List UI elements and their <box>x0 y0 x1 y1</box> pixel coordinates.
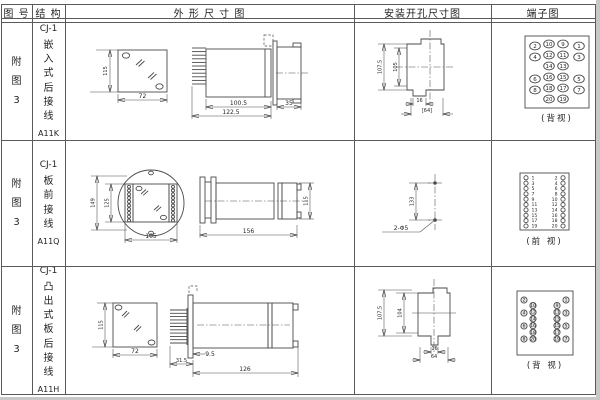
structure-cell-row3: CJ-1 凸出式板后接线 A11H <box>32 266 65 394</box>
svg-text:10: 10 <box>552 197 558 203</box>
svg-text:20: 20 <box>530 337 536 343</box>
relay-datasheet-page: 图 号 结 构 外 形 尺 寸 图 安装开孔尺寸图 端子图 附图3 附图3 附图… <box>0 0 600 400</box>
view-label: (背视) <box>541 113 573 124</box>
dim-label: 35 <box>285 100 293 107</box>
svg-text:18: 18 <box>552 218 558 224</box>
a11q-outline-drawing: 149 125 105 115 156 <box>65 140 354 267</box>
svg-text:13: 13 <box>560 64 567 70</box>
front-view: 115 72 <box>92 303 157 358</box>
svg-text:13: 13 <box>532 208 538 214</box>
header-divider <box>1 18 596 19</box>
column-divider <box>65 4 66 394</box>
dim-label: [64] <box>422 108 432 114</box>
dim-label: 72 <box>131 348 139 355</box>
view-label: (背 视) <box>527 360 563 371</box>
svg-text:5: 5 <box>577 77 581 83</box>
a11k-terminal-diagram: 21091 412113 1413 616155 818177 2019 (背视… <box>491 22 600 140</box>
front-view: 149 125 105 <box>91 170 185 243</box>
svg-text:1: 1 <box>577 44 581 50</box>
a11q-mounting-drawing: 133 2-Φ5 <box>354 140 491 267</box>
svg-text:7: 7 <box>577 88 581 94</box>
a11h-terminal-diagram: 2468 101214161820 91113151719 1357 (背 视) <box>491 267 600 395</box>
structure-cell-row2: CJ-1 板前接线 A11Q <box>32 140 65 266</box>
dim-label: 105 <box>145 233 157 240</box>
svg-text:13: 13 <box>554 316 560 322</box>
table-border-left <box>1 4 2 394</box>
svg-text:3: 3 <box>565 311 568 317</box>
svg-text:4: 4 <box>533 55 537 61</box>
svg-text:9: 9 <box>556 303 559 309</box>
fig-no-text: 附图3 <box>10 302 23 359</box>
svg-text:8: 8 <box>533 88 537 94</box>
column-divider <box>354 4 355 394</box>
svg-text:20: 20 <box>552 224 558 230</box>
model-code-label: A11K <box>38 129 59 138</box>
model-label: CJ-1 <box>40 266 58 276</box>
svg-text:12: 12 <box>546 53 553 59</box>
svg-text:7: 7 <box>532 192 535 198</box>
side-view: 100.5 122.5 35 <box>192 35 308 119</box>
svg-text:10: 10 <box>546 42 553 48</box>
dim-label: 156 <box>243 228 255 235</box>
dim-label: 9.5 <box>205 351 215 358</box>
svg-text:17: 17 <box>560 86 567 92</box>
side-view: 9.5 31.5 126 <box>170 286 298 377</box>
dim-label: 115 <box>103 66 109 76</box>
front-view: 115 72 <box>90 50 167 103</box>
hole-spec-label: 2-Φ5 <box>394 225 409 232</box>
row-divider <box>1 140 596 141</box>
dim-label: 104 <box>398 308 404 318</box>
svg-text:19: 19 <box>560 97 567 103</box>
svg-text:18: 18 <box>546 86 553 92</box>
dim-label: 115 <box>304 196 310 206</box>
dim-label: 16 <box>431 346 437 352</box>
column-divider <box>32 4 33 394</box>
dim-label: 100.5 <box>230 100 247 107</box>
side-view: 115 156 <box>200 177 314 238</box>
a11k-outline-drawing: 115 72 100.5 122.5 35 <box>65 22 354 140</box>
svg-text:14: 14 <box>546 64 553 70</box>
svg-text:9: 9 <box>561 42 565 48</box>
dim-label: 115 <box>99 320 105 330</box>
dim-label: 72 <box>139 93 147 100</box>
svg-text:16: 16 <box>552 213 558 219</box>
svg-text:17: 17 <box>554 330 560 336</box>
column-divider <box>491 4 492 394</box>
svg-text:1: 1 <box>532 175 535 181</box>
svg-text:3: 3 <box>532 181 535 187</box>
svg-text:3: 3 <box>577 55 581 61</box>
dim-label: 126 <box>239 366 251 373</box>
model-code-label: A11H <box>38 385 60 394</box>
dim-label: 149 <box>91 198 97 208</box>
a11h-outline-drawing: 115 72 9.5 31.5 126 <box>65 267 354 395</box>
svg-text:11: 11 <box>560 53 567 59</box>
dim-label: 64 <box>431 354 437 360</box>
dim-label: 107.5 <box>378 60 384 74</box>
fig-no-cell-row2: 附图3 <box>1 140 32 266</box>
svg-text:4: 4 <box>523 311 526 317</box>
dim-label: 133 <box>410 197 416 207</box>
svg-text:14: 14 <box>530 316 536 322</box>
svg-text:12: 12 <box>552 202 558 208</box>
svg-text:10: 10 <box>530 303 536 309</box>
dim-label: 16 <box>416 98 422 104</box>
dim-label: 107.5 <box>378 306 384 320</box>
row-divider <box>1 266 596 267</box>
fig-no-cell-row1: 附图3 <box>1 22 32 140</box>
view-label: (前 视) <box>526 236 562 247</box>
svg-text:17: 17 <box>532 218 538 224</box>
model-label: CJ-1 <box>40 24 58 34</box>
dim-label: 122.5 <box>222 109 239 116</box>
svg-text:19: 19 <box>554 337 560 343</box>
svg-text:1: 1 <box>565 298 568 304</box>
structure-cell-row1: CJ-1 嵌入式后接线 A11K <box>32 22 65 140</box>
a11k-mounting-drawing: 107.5 105 16 [64] <box>354 22 491 140</box>
svg-text:12: 12 <box>530 310 536 316</box>
svg-text:9: 9 <box>532 197 535 203</box>
dim-label: 105 <box>393 62 399 72</box>
a11h-mounting-drawing: 107.5 104 16 64 <box>354 267 491 395</box>
svg-text:8: 8 <box>555 192 558 198</box>
svg-text:11: 11 <box>554 310 560 316</box>
svg-text:11: 11 <box>532 202 538 208</box>
table-border-bottom <box>1 394 596 395</box>
model-code-label: A11Q <box>38 237 60 246</box>
terminal-circles: 135791113151719 2468101214161820 <box>524 175 565 229</box>
svg-text:15: 15 <box>532 213 538 219</box>
svg-text:5: 5 <box>532 186 535 192</box>
structure-type-label: 嵌入式后接线 <box>43 39 55 124</box>
a11q-terminal-diagram: 135791113151719 2468101214161820 (前 视) <box>491 140 600 267</box>
terminal-circles: 2468 101214161820 91113151719 1357 <box>521 297 569 343</box>
terminal-circles: 21091 412113 1413 616155 818177 2019 <box>530 40 585 103</box>
svg-text:8: 8 <box>523 337 526 343</box>
svg-text:20: 20 <box>546 97 553 103</box>
svg-text:4: 4 <box>555 181 558 187</box>
svg-text:16: 16 <box>546 75 553 81</box>
fig-no-text: 附图3 <box>10 175 23 232</box>
svg-text:16: 16 <box>530 323 536 329</box>
svg-text:15: 15 <box>554 323 560 329</box>
svg-text:6: 6 <box>555 186 558 192</box>
svg-text:15: 15 <box>560 75 567 81</box>
svg-text:2: 2 <box>523 298 526 304</box>
svg-text:7: 7 <box>565 337 568 343</box>
svg-text:18: 18 <box>530 330 536 336</box>
structure-type-label: 板前接线 <box>43 175 55 232</box>
structure-type-label: 凸出式板后接线 <box>43 281 55 380</box>
fig-no-cell-row3: 附图3 <box>1 266 32 394</box>
dim-label: 125 <box>105 198 111 208</box>
model-label: CJ-1 <box>40 160 58 170</box>
header-divider-double <box>1 22 596 23</box>
page-edge-right <box>596 0 600 400</box>
table-border-top <box>1 4 596 5</box>
svg-text:5: 5 <box>565 324 568 330</box>
fig-no-text: 附图3 <box>10 53 23 110</box>
svg-text:6: 6 <box>523 324 526 330</box>
svg-text:2: 2 <box>555 175 558 181</box>
svg-text:14: 14 <box>552 208 558 214</box>
svg-text:6: 6 <box>533 77 537 83</box>
dim-label: 31.5 <box>176 358 187 364</box>
svg-text:2: 2 <box>533 44 537 50</box>
svg-text:19: 19 <box>532 224 538 230</box>
